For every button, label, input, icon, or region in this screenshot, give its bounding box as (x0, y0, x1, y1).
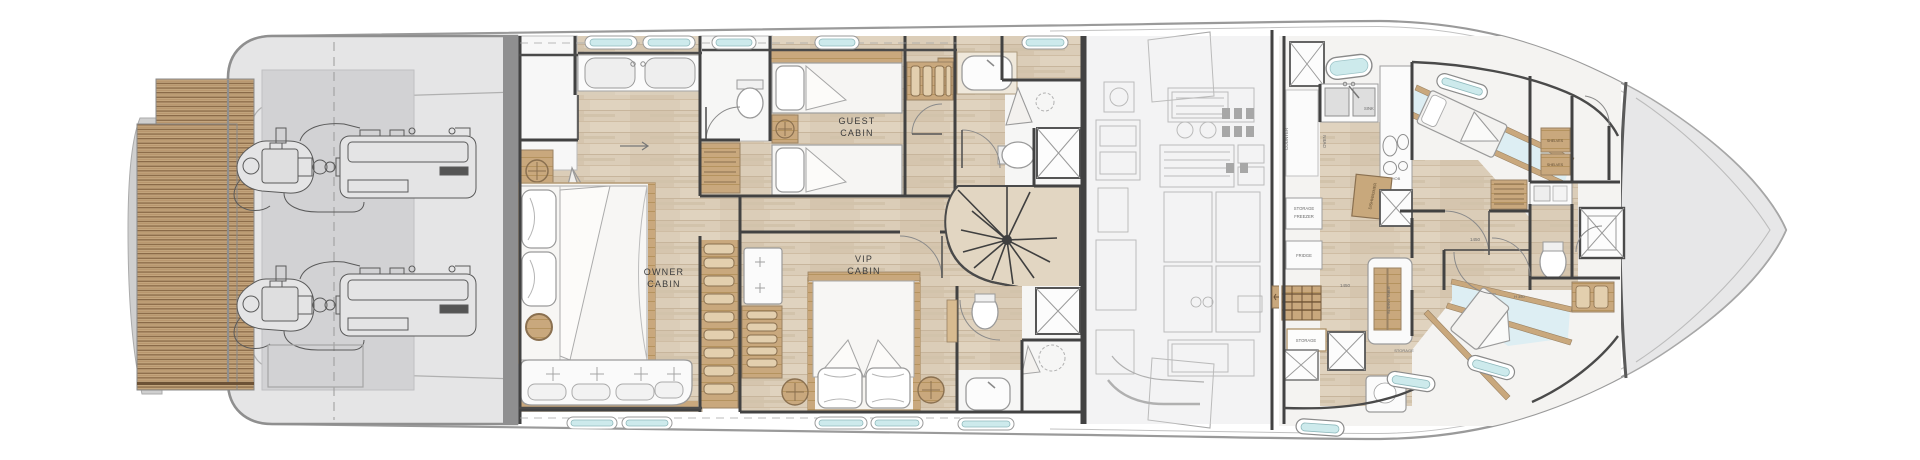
svg-text:STORAGE: STORAGE (1296, 338, 1317, 343)
svg-text:STORAGE: STORAGE (1394, 348, 1414, 353)
svg-text:STORAGE: STORAGE (1294, 206, 1315, 211)
svg-text:CABIN: CABIN (647, 279, 681, 289)
svg-text:CABIN: CABIN (847, 266, 881, 276)
svg-text:SLIDING TABLE: SLIDING TABLE (1387, 286, 1391, 314)
svg-text:H 350: H 350 (1514, 294, 1525, 299)
svg-text:SHELVES: SHELVES (1547, 139, 1564, 143)
svg-text:1450: 1450 (1340, 283, 1351, 288)
svg-text:GUEST: GUEST (838, 116, 875, 126)
svg-text:FRIDGE: FRIDGE (1296, 253, 1312, 258)
svg-text:SHELVES: SHELVES (1547, 163, 1564, 167)
svg-text:SINK: SINK (1364, 106, 1374, 111)
svg-text:OWNER: OWNER (644, 267, 685, 277)
svg-text:CABIN: CABIN (840, 128, 874, 138)
svg-text:OVEN: OVEN (1322, 135, 1327, 148)
svg-text:HOB: HOB (1392, 176, 1401, 181)
svg-text:1450: 1450 (1470, 237, 1481, 242)
svg-text:VIP: VIP (855, 254, 873, 264)
svg-text:FREEZER: FREEZER (1294, 214, 1314, 219)
